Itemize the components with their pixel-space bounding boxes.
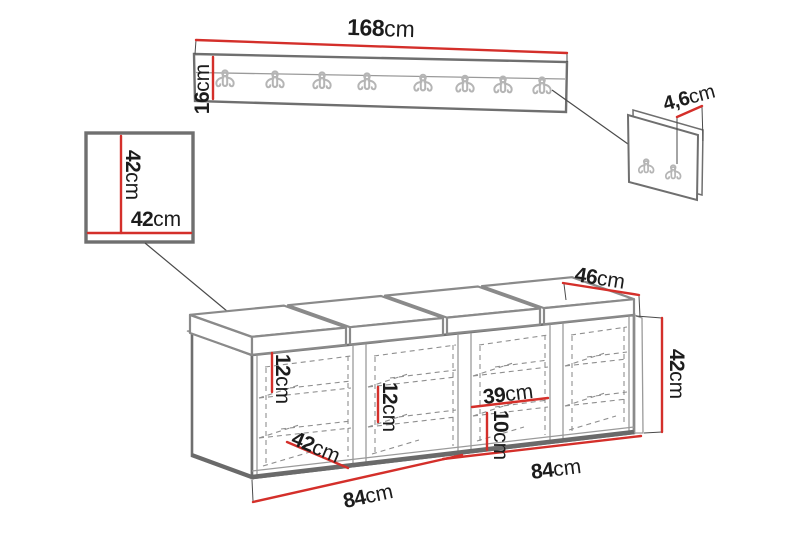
shoe-bench [187,277,662,502]
bench-height-label: 42cm [665,349,688,399]
bench-half-width-right-label: 84cm [530,455,583,484]
rack-height-label: 16cm [191,64,214,114]
panel-thickness-label: 4,6cm [661,80,718,115]
rack-width-dimension-line [196,40,567,53]
bench-half-width-left-label: 84cm [341,480,395,513]
coat-rack [194,40,567,112]
dimension-diagram: 168cm 16cm 4,6cm 42cm 42cm 46cm 42cm 12c… [0,0,800,533]
bench-shelf-gap2-label: 12cm [378,382,401,432]
bench-bottom-gap-label: 10cm [489,410,512,460]
rack-width-label: 168cm [347,14,415,42]
mirror-height-label: 42cm [121,150,144,200]
mirror-width-label: 42cm [131,208,181,231]
rack-to-panel-leader-line [552,90,628,144]
bench-shelf-gap1-label: 12cm [271,354,294,404]
wall-panel [628,106,703,200]
